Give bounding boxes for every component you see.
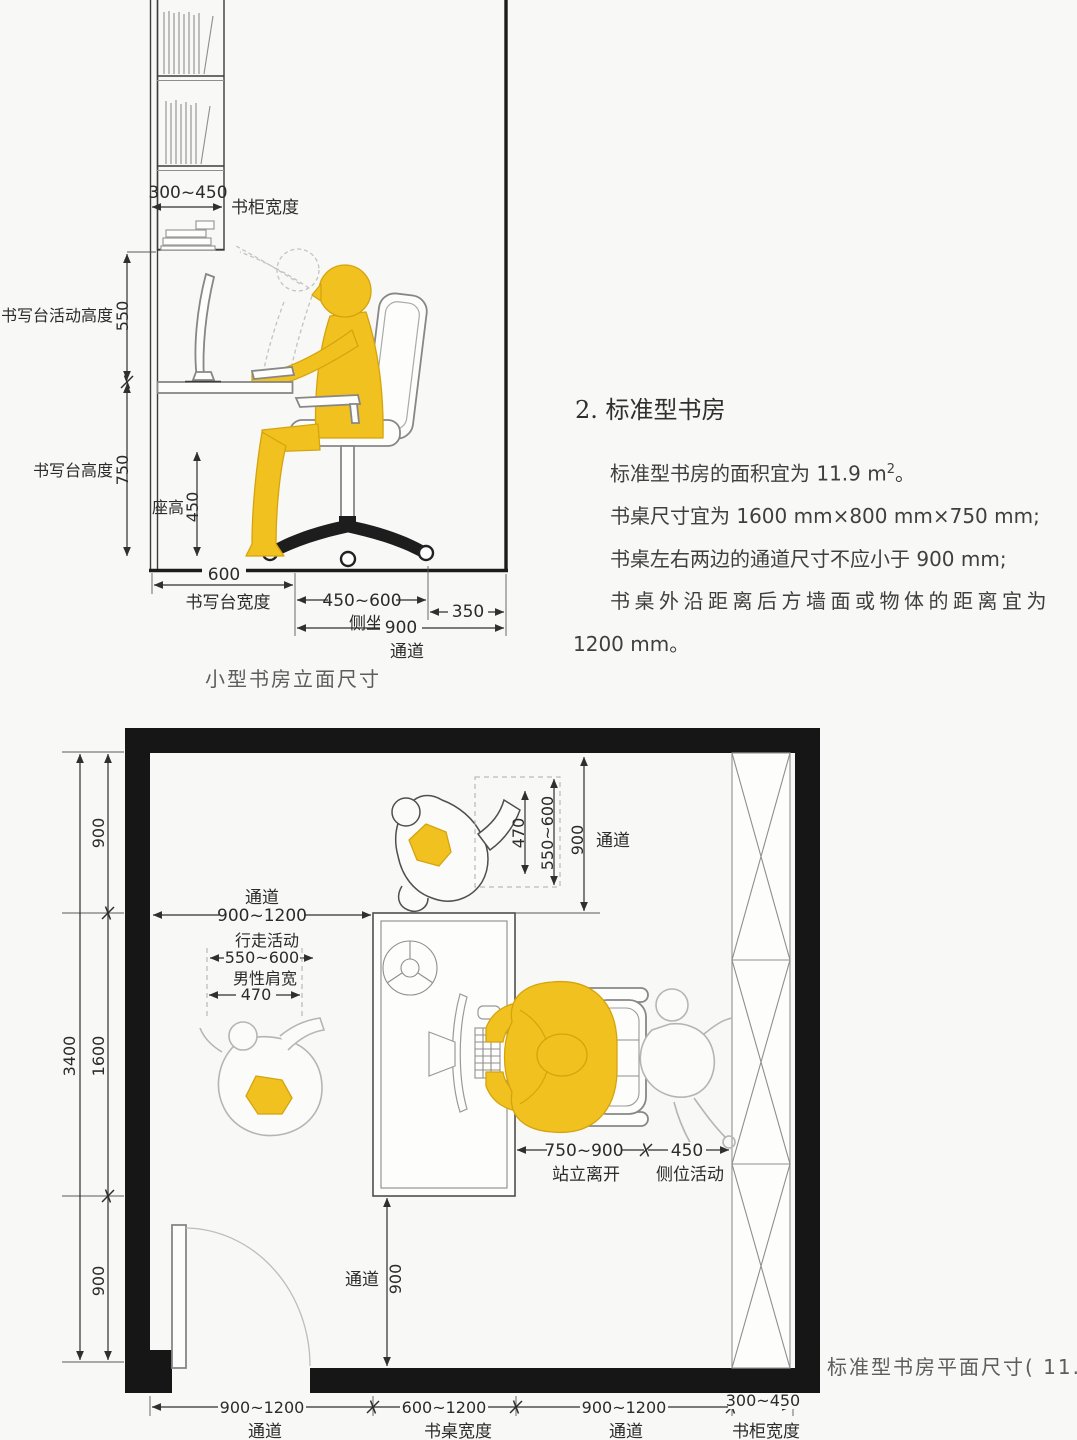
dim-seat-height: 座高 450	[152, 452, 202, 556]
notes-block: 2. 标准型书房 标准型书房的面积宜为 11.9 m2。 书桌尺寸宜为 1600…	[560, 390, 1075, 665]
door-swing-arc	[186, 1228, 310, 1366]
floor-plan-view: 通道 900~1200 行走活动 550~600 男性肩宽 470 470 55…	[60, 728, 1077, 1440]
dim-desk-height-value: 750	[113, 455, 132, 486]
dim-desk-activity-value: 550	[113, 301, 132, 332]
dim-side-activity-value: 450	[671, 1141, 703, 1161]
dim-bottom-1-label: 书桌宽度	[424, 1422, 492, 1440]
dim-shoulder-value: 470	[241, 985, 272, 1004]
dim-bottom-passage-label: 通道	[345, 1270, 379, 1290]
dim-left-outside: 3400 900 1600 900	[60, 752, 124, 1362]
elevation-bottom-dims: 600 书写台宽度 450~600 侧坐 350 900 通道	[152, 565, 506, 662]
dim-470-value: 470	[509, 818, 528, 849]
elevation-desk	[158, 382, 293, 393]
notes-line-area: 标准型书房的面积宜为 11.9 m2。	[610, 449, 1075, 495]
dim-left-seg-2: 900	[89, 1266, 108, 1297]
plan-person-walking	[392, 796, 520, 912]
dim-side-sit-label: 侧坐	[349, 614, 383, 634]
dim-desk-activity-label: 书写台活动高度	[1, 306, 113, 325]
dim-desk-width-label: 书写台宽度	[186, 593, 271, 613]
notes-line-rear-distance-value: 1200 mm。	[573, 623, 1075, 666]
person-face	[312, 284, 321, 301]
dim-desk-activity-height: 书写台活动高度 550	[1, 252, 156, 380]
diagram-svg: 300~450 书柜宽度	[0, 0, 1077, 1440]
plan-person-head	[537, 1034, 587, 1076]
dim-passage-value: 900	[385, 618, 417, 638]
dim-left-seg-1: 1600	[89, 1036, 108, 1077]
dim-rear-clearance-value: 350	[452, 602, 484, 622]
person-head	[319, 265, 371, 317]
dim-stand-leave-label: 站立离开	[552, 1165, 620, 1185]
chair-base-right	[346, 520, 428, 558]
dim-desk-height-label: 书写台高度	[33, 461, 113, 480]
books-shelf-2	[166, 100, 210, 164]
elevation-caption: 小型书房立面尺寸	[205, 667, 381, 691]
study-room-infographic: 300~450 书柜宽度	[0, 0, 1077, 1440]
dim-side-activity-label: 侧位活动	[656, 1165, 724, 1185]
elevation-person	[246, 265, 383, 556]
dim-bottom-3-label: 书柜宽度	[732, 1422, 800, 1440]
dim-bottom-3-value: 300~450	[726, 1391, 800, 1410]
elevation-view: 300~450 书柜宽度	[1, 0, 508, 691]
plan-caption: 标准型书房平面尺寸( 11.9 m2 )	[827, 1355, 1077, 1379]
dim-right-top: 470 550~600 900 通道	[509, 757, 630, 911]
dim-bottom-1-value: 600~1200	[402, 1398, 487, 1417]
elevation-bookcase	[157, 0, 224, 250]
dim-top-passage-value: 900~1200	[217, 906, 307, 926]
dim-seat-height-label: 座高	[152, 498, 184, 517]
dim-walking: 行走活动 550~600	[210, 931, 313, 967]
dim-bottom-2-value: 900~1200	[582, 1398, 667, 1417]
dim-stand-leave-value: 750~900	[544, 1141, 623, 1161]
superscript-2: 2	[887, 462, 895, 477]
notes-heading: 2. 标准型书房	[575, 390, 1075, 425]
dim-passage-label: 通道	[390, 642, 424, 662]
dim-bottom-passage-value: 900	[386, 1264, 405, 1295]
dim-cabinet-width-label: 书柜宽度	[231, 198, 299, 218]
elevation-monitor	[185, 274, 221, 382]
dim-desk-height: 书写台高度 750	[33, 384, 132, 556]
plan-person-standing-ghost	[640, 989, 735, 1148]
notes-line-rear-distance: 书桌外沿距离后方墙面或物体的距离宜为	[610, 580, 1075, 623]
dim-seat-height-value: 450	[183, 492, 202, 523]
dim-stand-leave: 750~900 站立离开 450 侧位活动	[517, 1141, 729, 1185]
plan-person-sitting-ghost	[200, 1018, 324, 1136]
dim-bottom-passage: 通道 900	[345, 1198, 405, 1366]
dim-left-total: 3400	[60, 1036, 79, 1077]
dim-side-sit-value: 450~600	[322, 591, 401, 611]
dim-cabinet-width-value: 300~450	[148, 183, 227, 203]
dim-900-value: 900	[568, 825, 587, 856]
books-stack	[161, 221, 215, 250]
dim-desk-width-value: 600	[208, 565, 240, 585]
notes-line-desk-size: 书桌尺寸宜为 1600 mm×800 mm×750 mm;	[610, 495, 1075, 538]
notes-line-passage: 书桌左右两边的通道尺寸不应小于 900 mm;	[610, 538, 1075, 581]
dim-right-passage-label: 通道	[596, 831, 630, 851]
plan-bookcase	[732, 753, 790, 1368]
dim-550-600-value: 550~600	[538, 796, 557, 870]
dim-walking-value: 550~600	[225, 948, 299, 967]
dim-bottom-2-label: 通道	[609, 1422, 643, 1440]
dim-bottom-0-label: 通道	[248, 1422, 282, 1440]
dim-top-passage-label: 通道	[245, 888, 279, 908]
dim-top-passage: 通道 900~1200	[153, 888, 371, 926]
books-shelf-1	[164, 11, 213, 74]
plan-door	[172, 1225, 310, 1368]
dim-bottom-outside: 900~1200 600~1200 900~1200 300~450 通道 书桌…	[150, 1391, 800, 1440]
dim-left-seg-0: 900	[89, 818, 108, 849]
dim-bottom-0-value: 900~1200	[220, 1398, 305, 1417]
